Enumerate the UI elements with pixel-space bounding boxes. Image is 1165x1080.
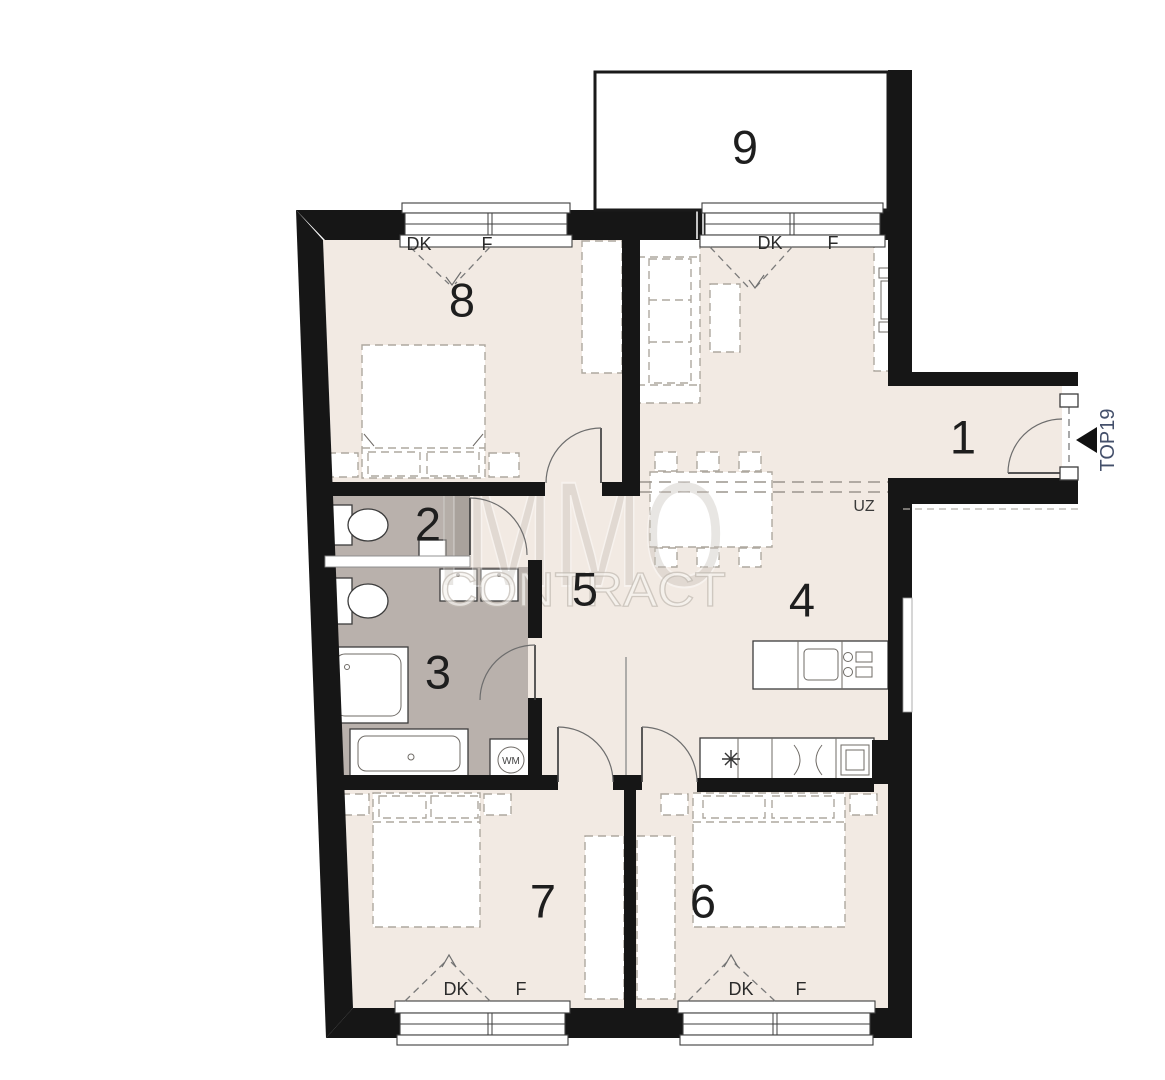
wardrobe-icon [637,836,675,999]
inner-wall [622,240,640,490]
inner-wall [872,740,888,784]
window-label-f: F [796,979,807,999]
nightstand-icon [661,794,688,815]
room-label-9: 9 [732,121,758,174]
wardrobe-icon [585,836,624,999]
beam-label-uz: UZ [853,498,875,515]
toilet-icon [327,505,388,545]
window-label-dk: DK [406,234,431,254]
nightstand-icon [328,453,358,477]
room-label-8: 8 [449,274,475,327]
inner-wall [613,775,642,790]
room-label-2: 2 [415,498,441,551]
window-label-dk: DK [728,979,753,999]
nightstand-icon [484,794,511,815]
inner-wall [528,698,542,777]
corridor-wall-bottom [888,478,1078,504]
washing-machine-label: WM [502,756,520,767]
room-label-6: 6 [690,875,716,928]
nightstand-icon [342,794,369,815]
room-label-4: 4 [789,574,815,627]
outer-wall-right-lower [888,490,912,1008]
room-label-7: 7 [530,875,556,928]
room-label-3: 3 [425,646,451,699]
kitchen-island-icon [753,641,888,689]
entrance-arrow-icon [1076,427,1097,453]
unit-label: TOP19 [1097,409,1119,472]
room-label-5: 5 [572,563,598,616]
wardrobe-icon [582,241,622,373]
wall-niche [903,598,912,712]
inner-wall [697,778,874,792]
room-label-1: 1 [950,411,976,464]
window-label-dk: DK [757,233,782,253]
sofa-icon [637,239,700,403]
corridor-wall-top [888,372,1078,386]
inner-wall [323,482,545,496]
partition-wall [325,556,470,567]
window-label-f: F [828,233,839,253]
inner-wall [323,775,558,790]
bathtub-icon [350,729,468,778]
coffee-table-icon [710,284,740,352]
kitchen-counter-icon [700,738,874,780]
floorplan-page: IMMO CONTRACT [0,0,1165,1080]
window-label-f: F [482,234,493,254]
window-label-f: F [516,979,527,999]
inner-wall [602,482,640,496]
inner-wall [528,560,542,638]
outer-wall-right-upper [888,70,912,372]
nightstand-icon [850,794,877,815]
inner-wall [624,790,636,1008]
window-label-dk: DK [443,979,468,999]
floorplan-drawing: IMMO CONTRACT [0,0,1165,1080]
bed-icon [373,793,480,927]
